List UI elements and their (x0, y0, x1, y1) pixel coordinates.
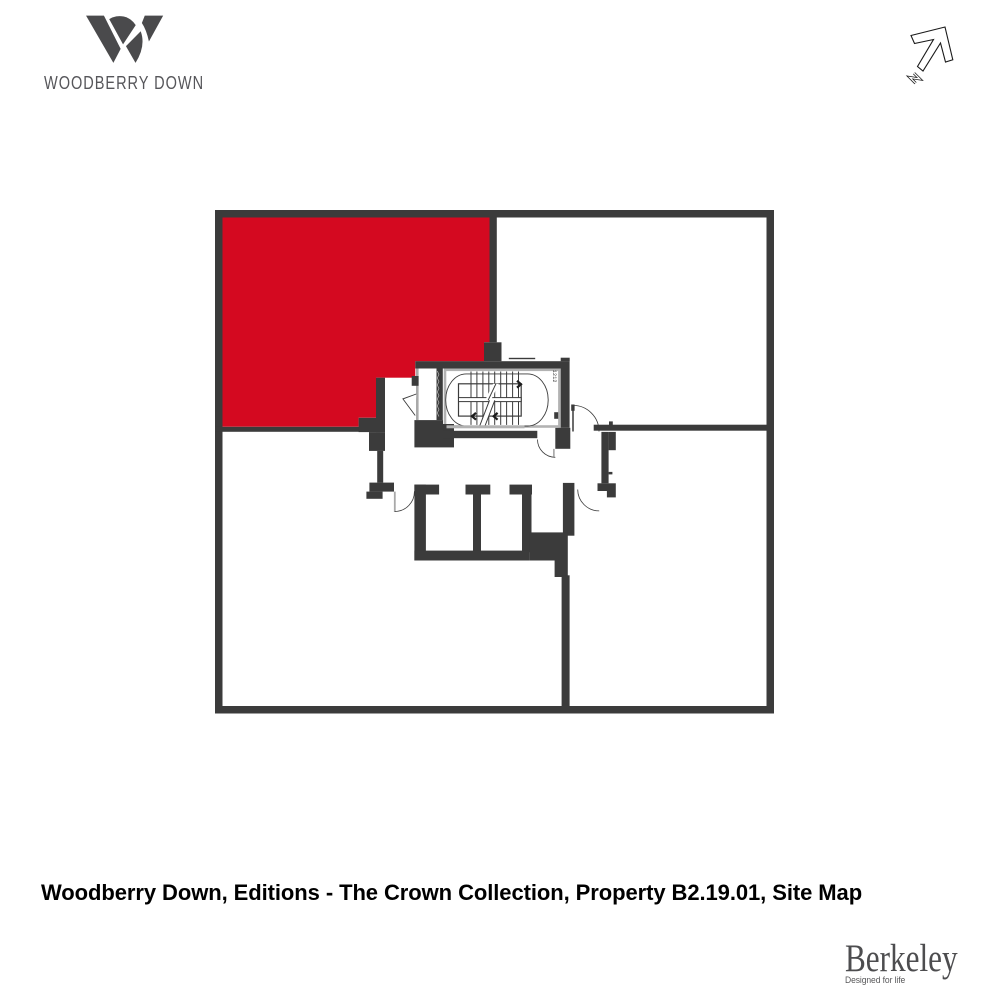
svg-text:1212: 1212 (551, 370, 557, 383)
